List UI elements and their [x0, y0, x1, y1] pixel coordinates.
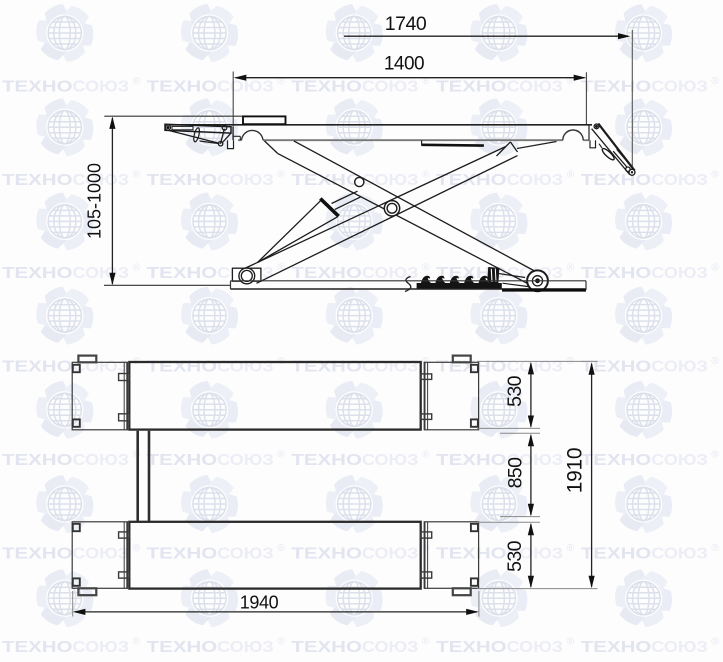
svg-text:530: 530: [504, 540, 526, 571]
svg-text:850: 850: [505, 457, 527, 488]
svg-text:1910: 1910: [564, 448, 587, 494]
svg-text:105-1000: 105-1000: [85, 163, 105, 239]
svg-text:1940: 1940: [240, 593, 279, 613]
svg-text:1400: 1400: [384, 54, 424, 75]
svg-text:1740: 1740: [385, 13, 427, 35]
svg-text:530: 530: [504, 375, 526, 406]
